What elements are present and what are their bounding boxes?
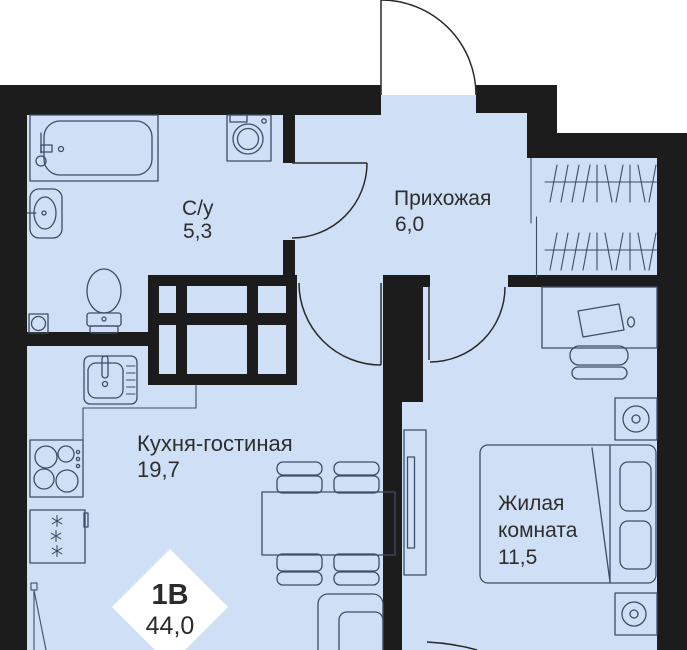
floor-area: [27, 95, 657, 650]
unit-total-area: 44,0: [146, 612, 195, 640]
room-label-bathroom: С/у: [182, 197, 214, 220]
room-label-bedroom-line2: комната: [498, 519, 578, 542]
room-area-bathroom: 5,3: [183, 220, 212, 243]
room-label-hallway: Прихожая: [394, 187, 491, 210]
entrance-threshold: [381, 95, 476, 117]
wall-closet-bottom: [508, 275, 687, 287]
wall-top-far-right: [527, 133, 687, 158]
entrance-door-swing-icon: [381, 0, 476, 95]
floor-plan: С/у 5,3 Прихожая 6,0 Кухня-гостиная 19,7…: [0, 0, 687, 650]
room-area-bedroom: 11,5: [498, 546, 537, 569]
wall-bedroom: [383, 287, 402, 650]
wall-top-left: [0, 85, 381, 115]
room-area-kitchen-living: 19,7: [137, 457, 180, 482]
wall-hall-bedroom: [383, 275, 430, 287]
floor-plan-page: С/у 5,3 Прихожая 6,0 Кухня-гостиная 19,7…: [0, 0, 687, 650]
wall-right: [657, 155, 687, 650]
vent-shaft: [148, 275, 297, 385]
wall-top-right: [476, 85, 557, 113]
wall-bath-bottom: [27, 332, 148, 346]
room-label-kitchen-living: Кухня-гостиная: [137, 431, 293, 456]
room-label-bedroom-line1: Жилая: [498, 492, 564, 515]
wall-bath-upper: [283, 115, 295, 163]
unit-type-label: 1В: [151, 579, 188, 611]
wall-left: [0, 85, 27, 650]
room-area-hallway: 6,0: [395, 213, 424, 236]
wall-bath-lower: [283, 240, 295, 280]
